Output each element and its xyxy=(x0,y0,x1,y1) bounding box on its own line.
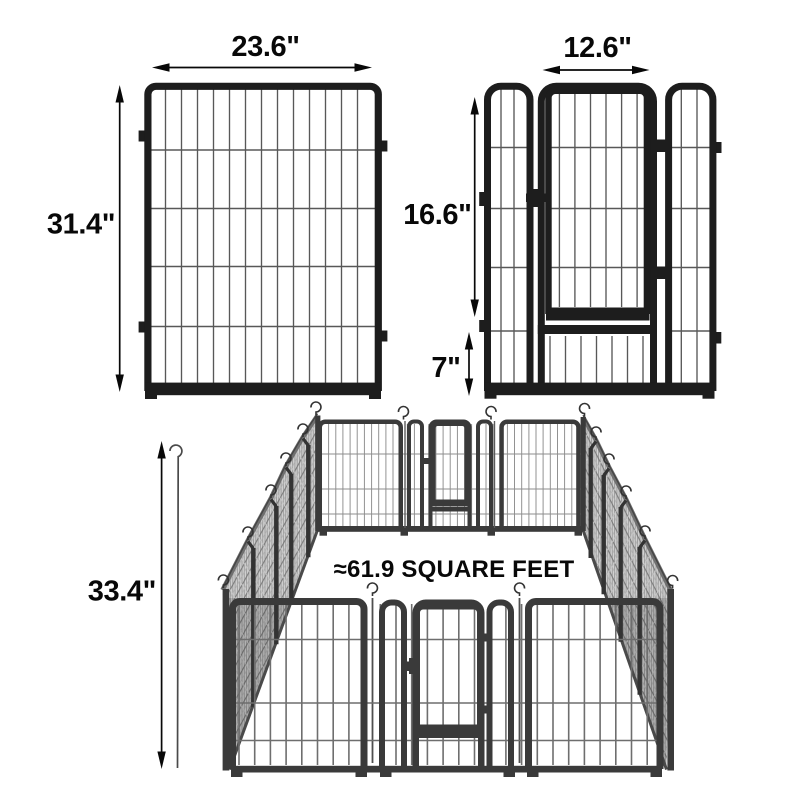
svg-text:7": 7" xyxy=(431,352,460,384)
svg-text:23.6": 23.6" xyxy=(231,31,299,63)
svg-text:33.4": 33.4" xyxy=(88,575,156,607)
svg-text:12.6": 12.6" xyxy=(563,32,631,64)
svg-text:≈61.9 SQUARE FEET: ≈61.9 SQUARE FEET xyxy=(334,556,575,583)
svg-text:16.6": 16.6" xyxy=(403,199,471,231)
svg-text:31.4": 31.4" xyxy=(47,209,115,241)
